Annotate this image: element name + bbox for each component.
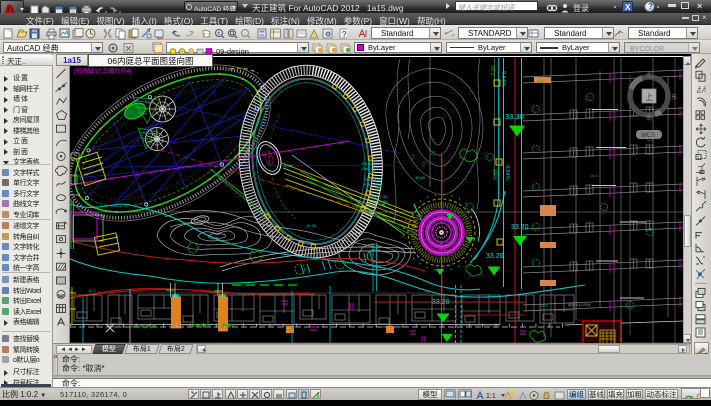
svg-text:PW 20.35: PW 20.35	[370, 199, 388, 204]
svg-text:南: 南	[646, 114, 652, 122]
svg-text:坡道长12.00米: 坡道长12.00米	[568, 302, 591, 307]
svg-text:33.20: 33.20	[511, 224, 529, 231]
svg-text:3.5: 3.5	[430, 150, 436, 156]
svg-text:30.60: 30.60	[415, 175, 426, 180]
svg-text:0.54%: 0.54%	[504, 165, 510, 181]
svg-text:33.20: 33.20	[432, 299, 450, 306]
svg-text:北: 北	[646, 71, 652, 79]
svg-text:18.5: 18.5	[72, 173, 81, 178]
svg-text:18.5: 18.5	[489, 65, 495, 76]
svg-text:3.5: 3.5	[421, 161, 427, 167]
svg-text:18.5: 18.5	[540, 303, 549, 308]
svg-text:PW 24.85: PW 24.85	[364, 182, 382, 187]
svg-text:?: ?	[342, 30, 347, 39]
svg-text:1:1: 1:1	[486, 393, 496, 400]
svg-text:±: ±	[217, 31, 220, 37]
svg-text:0.54%: 0.54%	[500, 71, 506, 87]
svg-text:3.5: 3.5	[410, 154, 416, 160]
svg-text:⚙: ⚙	[325, 31, 331, 39]
svg-text:上: 上	[645, 92, 654, 102]
svg-text:WCS: WCS	[641, 133, 655, 139]
svg-text:33.20: 33.20	[486, 253, 504, 260]
svg-text:|引|图设计|三图比例4|: |引|图设计|三图比例4|	[74, 67, 132, 75]
svg-text:10.35: 10.35	[306, 223, 317, 228]
svg-text:PW 32.00: PW 32.00	[362, 166, 380, 171]
svg-text:东: 东	[671, 93, 677, 101]
svg-text:登录: 登录	[573, 3, 589, 13]
svg-text:18.5: 18.5	[536, 79, 545, 84]
svg-text:09-design: 09-design	[216, 47, 249, 56]
svg-text:18.5: 18.5	[491, 169, 497, 180]
svg-text:16.6: 16.6	[590, 173, 599, 178]
svg-text:33.30: 33.30	[505, 112, 524, 121]
svg-text:18.5: 18.5	[88, 288, 97, 293]
svg-text:10.50: 10.50	[283, 163, 294, 168]
